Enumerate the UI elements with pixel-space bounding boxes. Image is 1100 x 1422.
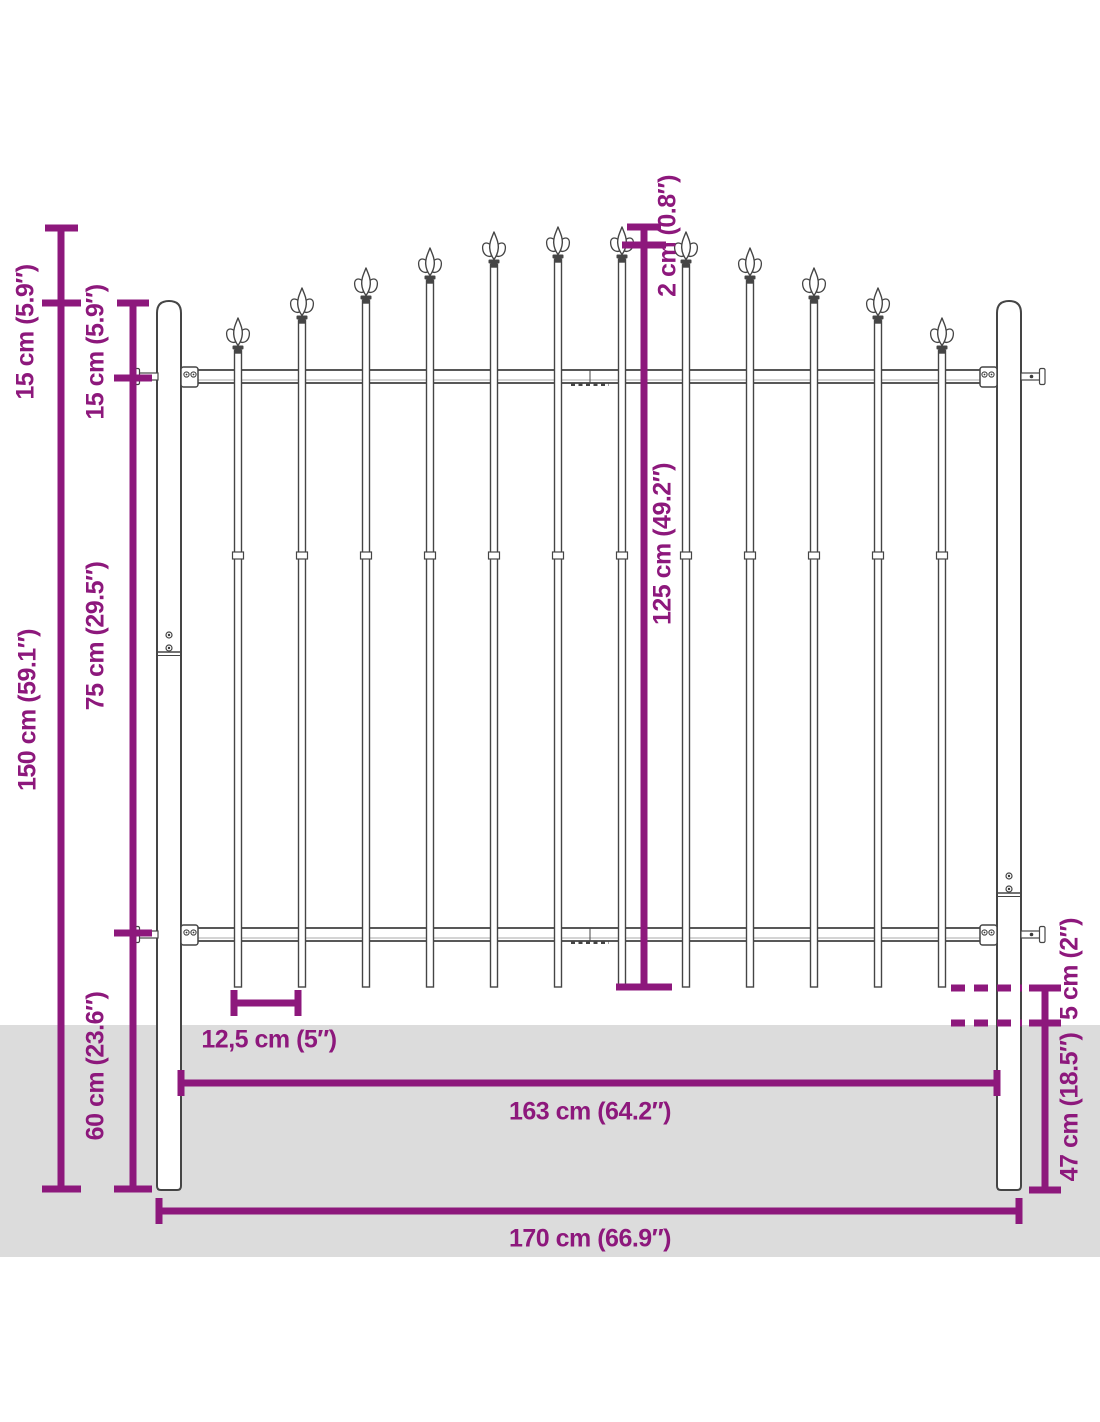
dim-label-post-height-150cm: 150 cm (59.1″) <box>16 629 41 791</box>
dim-label-spear-step-2cm: 2 cm (0.8″) <box>656 175 681 297</box>
dim-label-arch-rise-15cm: 15 cm (5.9″) <box>14 264 39 399</box>
dim-label-buried-depth-47cm: 47 cm (18.5″) <box>1058 1033 1083 1182</box>
dim-label-ground-clearance-5cm: 5 cm (2″) <box>1058 918 1083 1020</box>
dim-label-post-above-rail-15cm: 15 cm (5.9″) <box>84 284 109 419</box>
product-dimension-diagram: 15 cm (5.9″) 15 cm (5.9″) 75 cm (29.5″) … <box>0 0 1100 1422</box>
rail-brackets <box>134 367 1045 945</box>
dim-label-inner-width-163cm: 163 cm (64.2″) <box>509 1100 671 1125</box>
fence-pickets <box>227 227 954 987</box>
fence-diagram <box>0 0 1100 1422</box>
dim-label-picket-spacing-12-5cm: 12,5 cm (5″) <box>201 1028 336 1053</box>
dim-label-rail-spacing-75cm: 75 cm (29.5″) <box>84 562 109 711</box>
dim-label-lower-section-60cm: 60 cm (23.6″) <box>84 992 109 1141</box>
dim-label-picket-length-125cm: 125 cm (49.2″) <box>651 463 676 625</box>
dim-label-outer-width-170cm: 170 cm (66.9″) <box>509 1227 671 1252</box>
